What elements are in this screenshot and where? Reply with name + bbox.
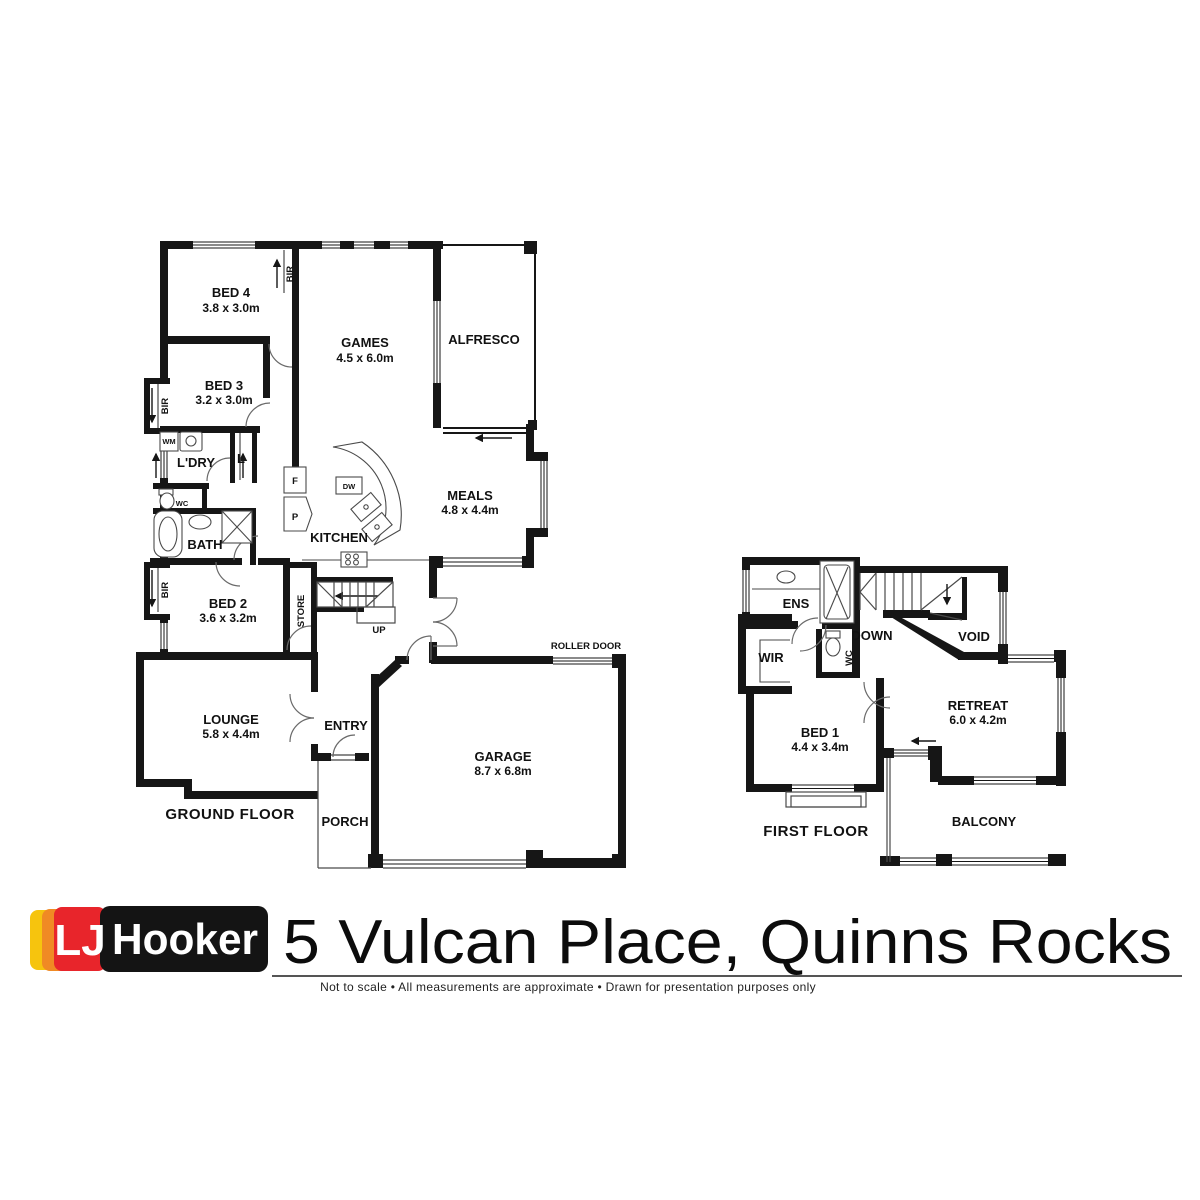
gf-kitchen-label: KITCHEN [310,530,368,545]
gf-dw-label: DW [343,482,356,491]
logo-lj-text: LJ [54,916,105,965]
gf-pantry-label: P [292,512,299,523]
ff-bed1-label: BED 1 [801,725,839,740]
gf-wm-label: WM [162,437,175,446]
ff-retreat-label: RETREAT [948,698,1008,713]
gf-wc-label: WC [176,499,189,508]
gf-lounge-dims: 5.8 x 4.4m [202,727,259,741]
gf-garage-label: GARAGE [474,749,531,764]
ff-balcony-label: BALCONY [952,814,1017,829]
address-title: 5 Vulcan Place, Quinns Rocks [283,908,1172,977]
gf-alfresco-label: ALFRESCO [448,332,520,347]
floorplan-svg: BED 4 3.8 x 3.0m BED 3 3.2 x 3.0m GAMES … [0,0,1200,1200]
gf-garage-dims: 8.7 x 6.8m [474,764,531,778]
gf-bed2-dims: 3.6 x 3.2m [199,611,256,625]
gf-ldry-label: L'DRY [177,455,215,470]
gf-fridge-label: F [292,476,298,487]
gf-meals-dims: 4.8 x 4.4m [441,503,498,517]
ff-wc-label: WC [844,650,855,666]
ff-void-label: VOID [958,629,990,644]
gf-bed4-label: BED 4 [212,285,251,300]
gf-store-label: STORE [296,595,307,628]
gf-bed3-label: BED 3 [205,378,243,393]
gf-linen-label: L [237,451,245,466]
gf-kitchen-fixtures [284,442,429,567]
ff-down-label: DOWN [851,628,892,643]
ff-floor-label: FIRST FLOOR [763,823,869,840]
logo-hooker-text: Hooker [112,915,258,964]
gf-up-label: UP [372,625,386,636]
ff-arrows [912,584,947,741]
lj-hooker-logo: LJ Hooker [30,906,268,972]
gf-floor-label: GROUND FLOOR [165,806,294,823]
gf-lounge-label: LOUNGE [203,712,259,727]
ground-floor-plan: BED 4 3.8 x 3.0m BED 3 3.2 x 3.0m GAMES … [136,241,626,868]
ff-ens-label: ENS [783,596,810,611]
ff-wir-label: WIR [758,650,784,665]
gf-games-dims: 4.5 x 6.0m [336,351,393,365]
ff-balcony-outline [786,758,890,862]
disclaimer-text: Not to scale • All measurements are appr… [320,980,816,994]
floorplan-page: BED 4 3.8 x 3.0m BED 3 3.2 x 3.0m GAMES … [0,0,1200,1200]
gf-bed2-label: BED 2 [209,596,247,611]
ff-bed1-dims: 4.4 x 3.4m [791,740,848,754]
gf-meals-label: MEALS [447,488,493,503]
footer: LJ Hooker 5 Vulcan Place, Quinns Rocks N… [30,906,1182,994]
gf-roller-door-label: ROLLER DOOR [551,641,621,652]
gf-bir-bed3-label: BIR [160,398,171,415]
gf-bir-bed4-label: BIR [285,266,296,283]
gf-stairs-up [317,582,395,623]
gf-entry-label: ENTRY [324,718,368,733]
gf-bir-bed2-label: BIR [160,582,171,599]
gf-bath-label: BATH [187,537,222,552]
first-floor-plan: ENS WIR DOWN WC VOID BED 1 4.4 x 3.4m RE… [738,557,1066,866]
ff-retreat-dims: 6.0 x 4.2m [949,713,1006,727]
gf-bed3-dims: 3.2 x 3.0m [195,393,252,407]
gf-porch-label: PORCH [322,814,369,829]
gf-bed4-dims: 3.8 x 3.0m [202,301,259,315]
gf-games-label: GAMES [341,335,389,350]
